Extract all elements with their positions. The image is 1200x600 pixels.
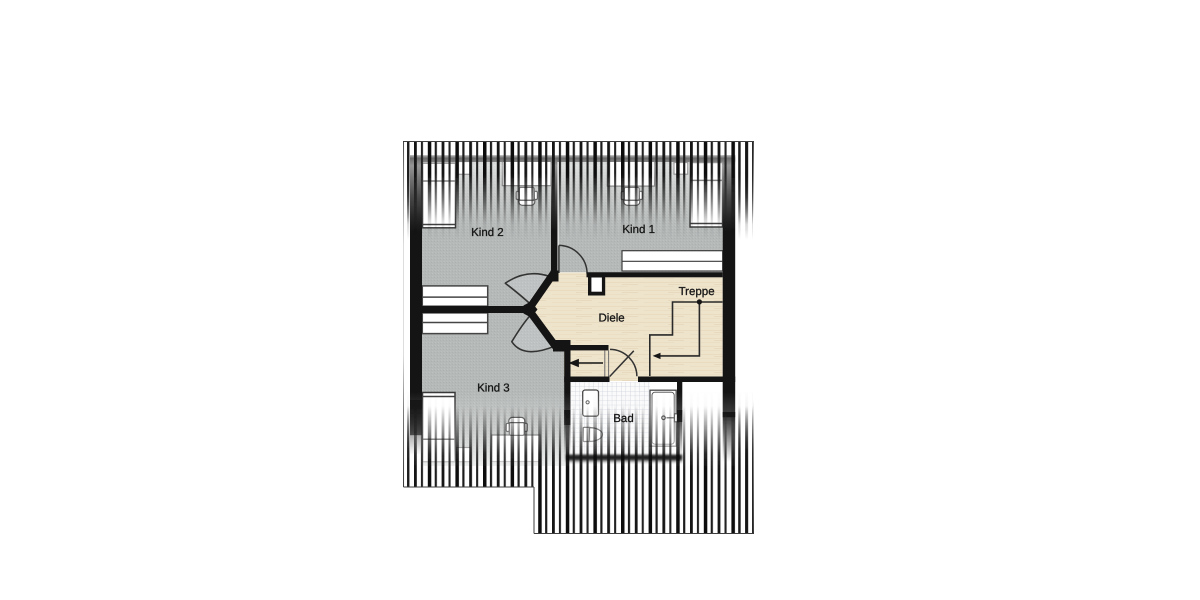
svg-text:Kind 2: Kind 2 bbox=[471, 227, 504, 239]
svg-text:Kind 3: Kind 3 bbox=[477, 382, 510, 394]
svg-text:Bad: Bad bbox=[613, 413, 633, 425]
svg-text:Diele: Diele bbox=[598, 313, 624, 325]
svg-text:Kind 1: Kind 1 bbox=[622, 224, 655, 236]
svg-text:Treppe: Treppe bbox=[679, 286, 715, 298]
